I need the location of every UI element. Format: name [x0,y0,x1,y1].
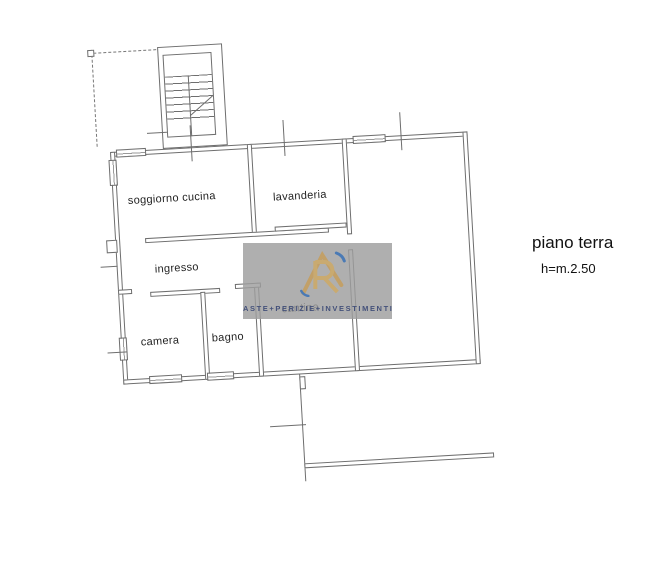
window-bagno-bottom [207,371,234,381]
room-label-soggiorno-cucina: soggiorno cucina [128,190,217,207]
room-label-camera: camera [140,334,179,348]
wall-soggiorno-lavanderia [247,144,257,235]
room-label-ingresso: ingresso [155,261,200,276]
floor-name-label: piano terra [532,233,613,253]
watermark-overlay: ASTE+PERIZIE+INVESTIMENTI [243,243,392,319]
wall-bigroom-left-upper [342,138,353,234]
window-soggiorno-top [116,148,146,158]
courtyard-wall [304,452,494,468]
wall-camera-bagno [200,292,210,380]
wall-left-stub [118,289,132,295]
room-label-bagno: bagno [212,331,245,345]
dashed-corner-post [87,50,94,57]
dim-tick-left-a [101,266,118,268]
window-camera-left [119,337,128,360]
ri-monogram-logo [295,245,349,302]
wall-left-pilaster [106,240,118,254]
dim-tick-top-b [282,120,285,156]
wall-ingresso-camera [150,288,220,297]
wall-right [462,131,480,364]
watermark-tagline: ASTE+PERIZIE+INVESTIMENTI [243,304,392,313]
window-soggiorno-left [108,160,117,186]
ceiling-height-label: h=m.2.50 [541,261,596,276]
dashed-line-horizontal [93,49,156,54]
window-camera-bottom [149,374,182,384]
floor-plan-page: soggiorno cucina lavanderia ingresso can… [0,0,649,566]
window-bigroom-top [352,134,385,144]
courtyard-door-stub [299,376,306,389]
dashed-line-vertical [91,50,98,147]
dim-tick-top-c [399,112,402,150]
courtyard-cross-tick [270,424,306,427]
room-label-lavanderia: lavanderia [273,189,327,204]
